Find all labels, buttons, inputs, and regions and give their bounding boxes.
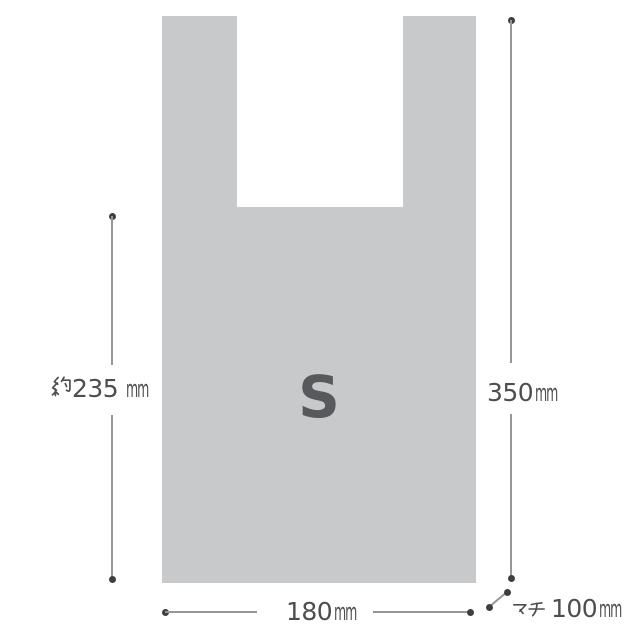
width-unit: mm [334, 597, 356, 627]
left-dimension-line-upper [111, 216, 113, 365]
width-value: 180 [286, 597, 332, 626]
bag-handle-cutout [237, 16, 403, 207]
dimension-endpoint-dot [467, 609, 474, 616]
width-label: 180mm [286, 597, 357, 627]
body-height-label: 235mm [51, 374, 149, 404]
gusset-value: 100 [551, 594, 597, 623]
dimension-endpoint-dot [486, 604, 493, 611]
total-height-value: 350 [487, 378, 533, 407]
body-height-unit: mm [126, 374, 148, 404]
right-dimension-line-lower [510, 414, 512, 578]
right-dimension-line-upper [510, 20, 512, 363]
bottom-dimension-line-left [165, 611, 257, 613]
bottom-dimension-line-right [373, 611, 470, 613]
total-height-label: 350mm [487, 378, 558, 408]
bag-size-diagram: S 235mm 350mm 180mm [0, 0, 640, 640]
dimension-endpoint-dot [504, 589, 511, 596]
gusset-unit: mm [599, 594, 621, 624]
dimension-endpoint-dot [109, 576, 116, 583]
body-height-value: 235 [72, 374, 118, 403]
total-height-unit: mm [535, 378, 557, 408]
dimension-endpoint-dot [508, 575, 515, 582]
bag-size-letter: S [289, 368, 349, 426]
yaku-kanji-icon [51, 376, 72, 397]
left-dimension-line-lower [111, 415, 113, 579]
machi-katakana-icon [512, 601, 545, 617]
gusset-label: 100mm [512, 594, 622, 624]
